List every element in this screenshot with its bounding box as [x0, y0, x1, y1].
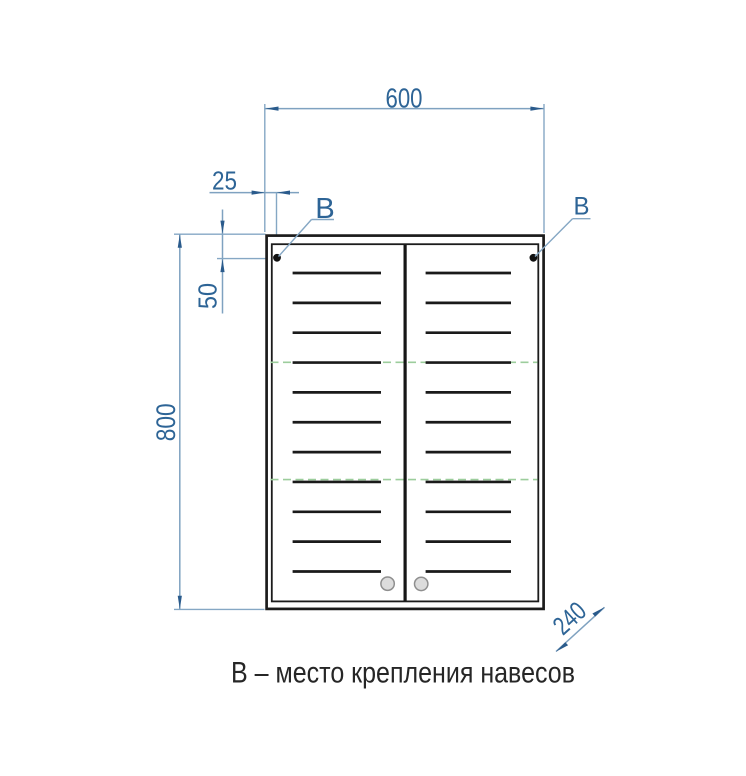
- svg-text:800: 800: [151, 403, 181, 441]
- svg-text:B: B: [315, 193, 335, 225]
- svg-text:В – место крепления навесов: В – место крепления навесов: [231, 657, 575, 690]
- svg-text:50: 50: [193, 283, 223, 309]
- svg-text:25: 25: [212, 165, 237, 195]
- svg-text:600: 600: [386, 83, 423, 114]
- svg-text:B: B: [574, 192, 590, 220]
